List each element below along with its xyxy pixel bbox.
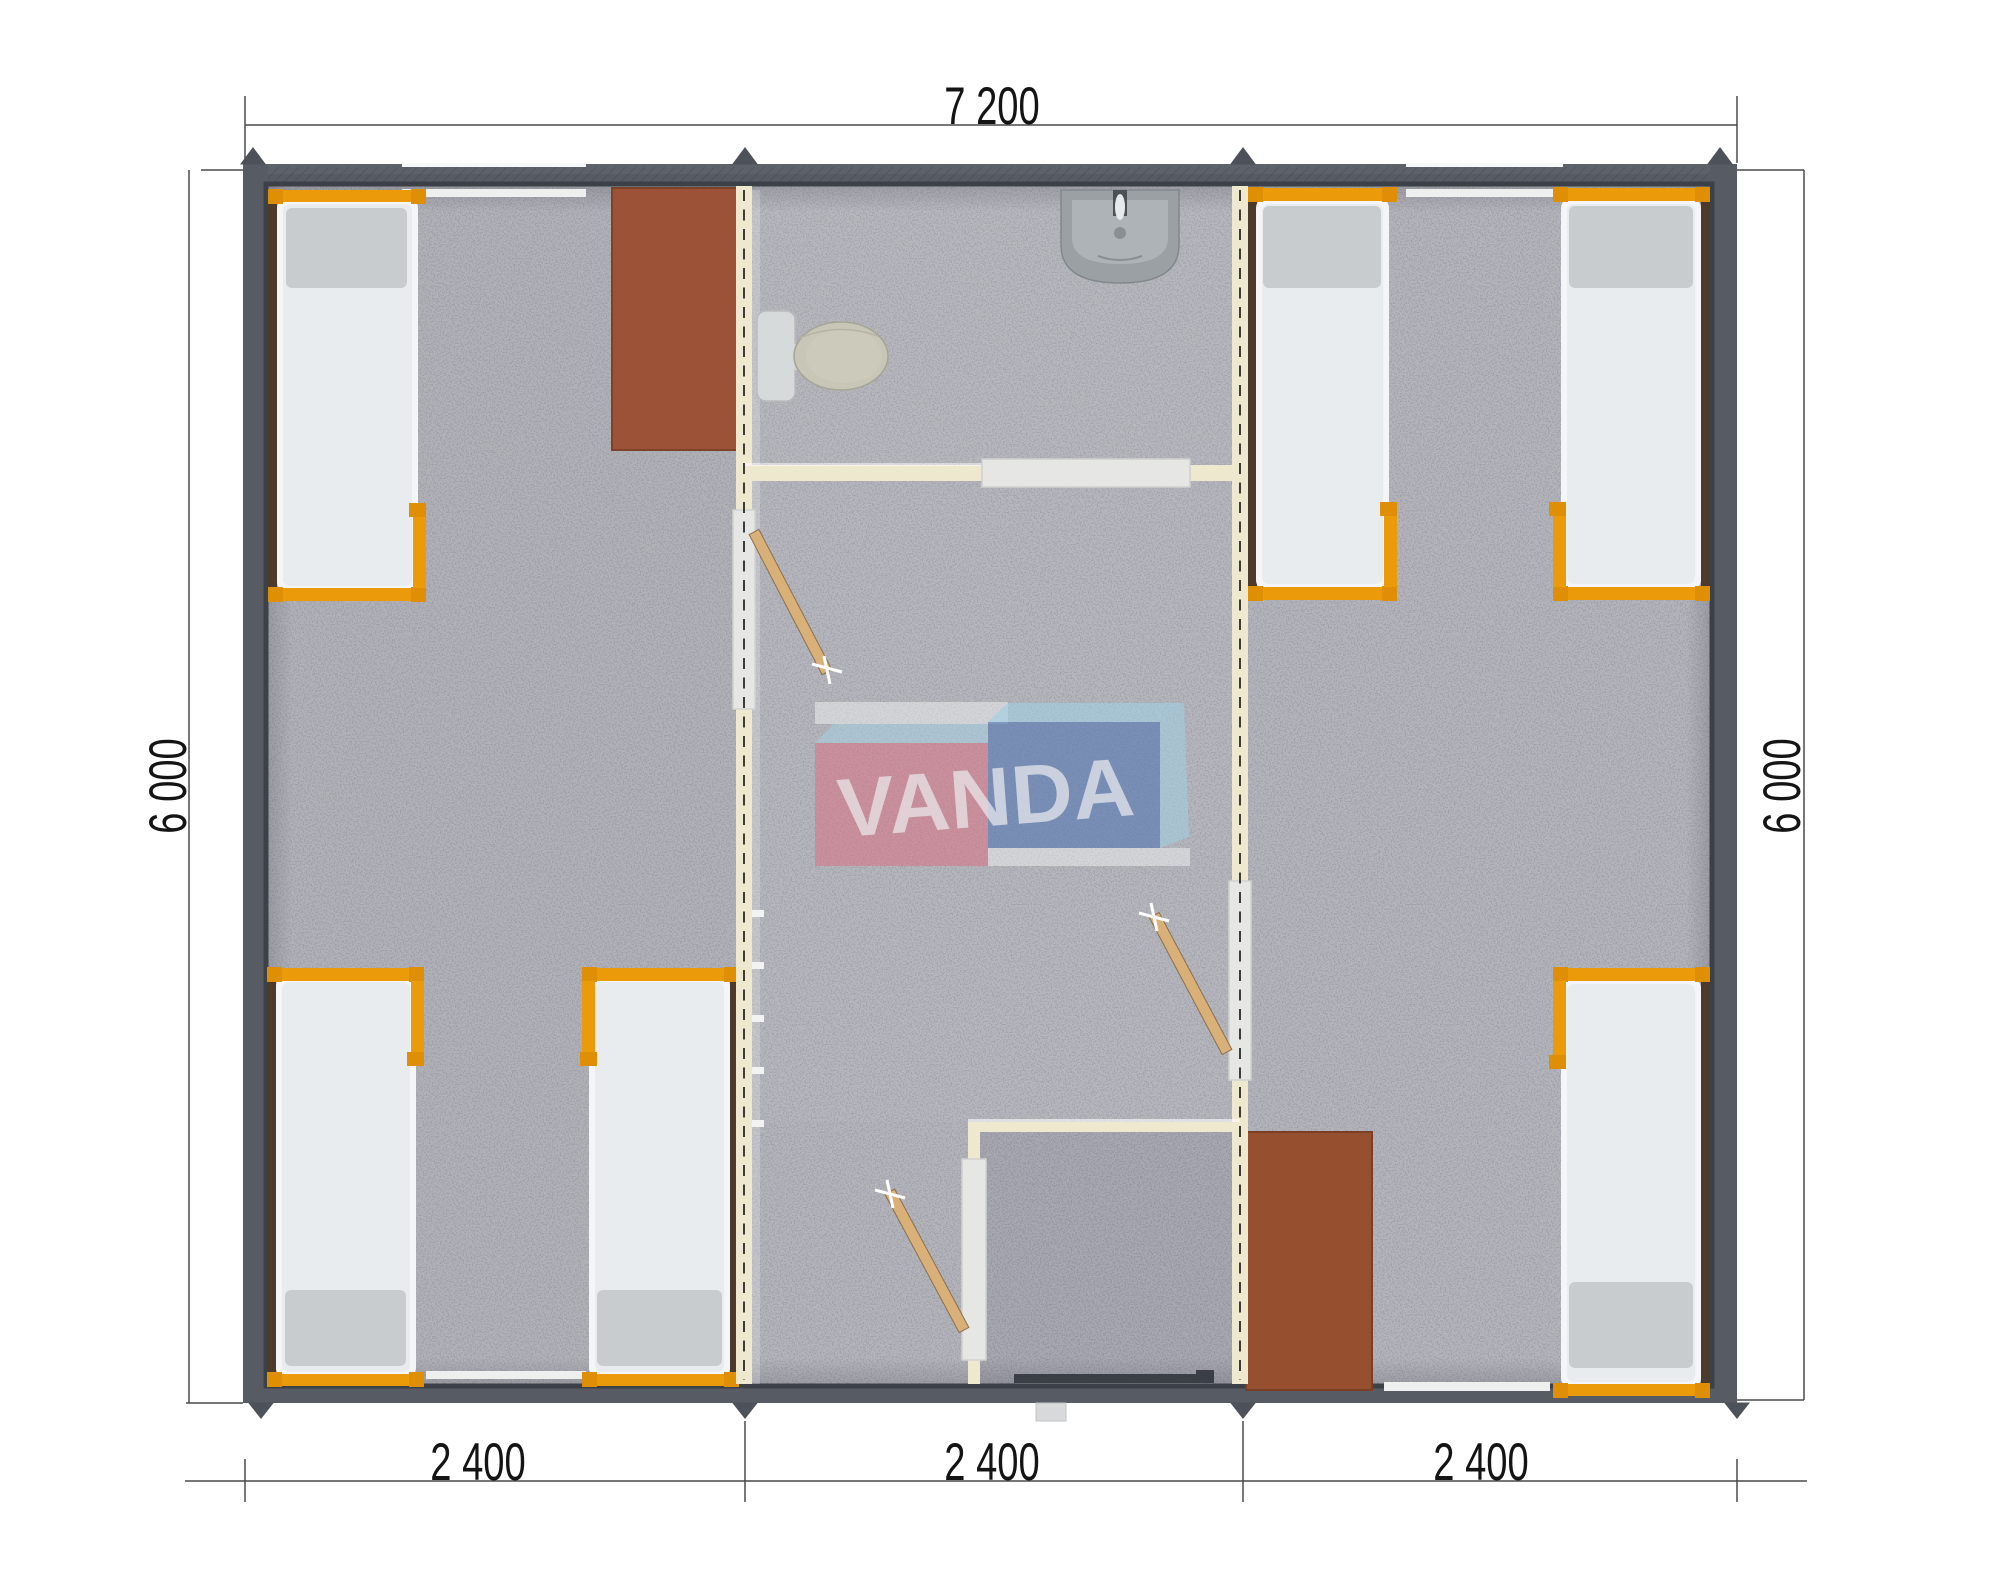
svg-text:2 400: 2 400 [944, 1432, 1039, 1492]
svg-text:7 200: 7 200 [944, 76, 1039, 136]
svg-text:2 400: 2 400 [430, 1432, 525, 1492]
svg-text:6 000: 6 000 [1752, 738, 1812, 833]
svg-text:2 400: 2 400 [1433, 1432, 1528, 1492]
svg-text:6 000: 6 000 [138, 738, 198, 833]
